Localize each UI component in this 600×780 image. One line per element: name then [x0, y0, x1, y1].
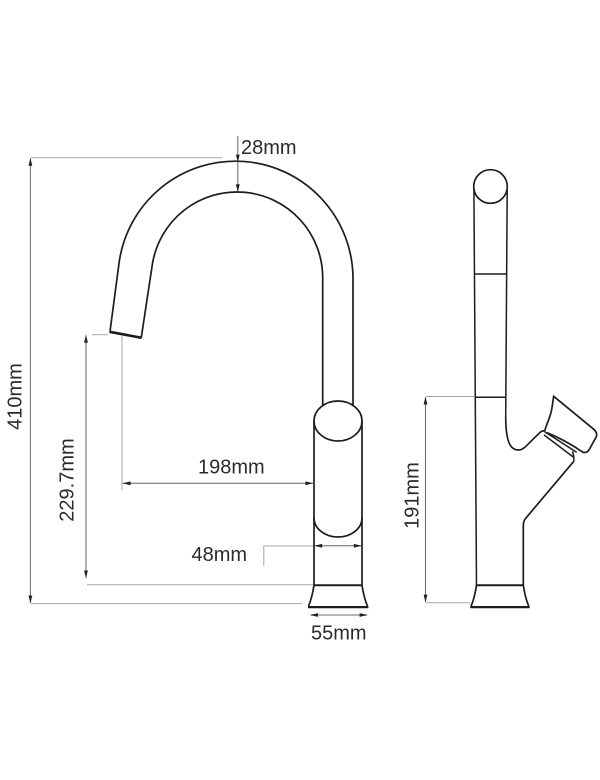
- svg-text:198mm: 198mm: [198, 457, 265, 479]
- svg-text:48mm: 48mm: [192, 544, 248, 566]
- svg-text:55mm: 55mm: [311, 623, 367, 645]
- svg-text:28mm: 28mm: [241, 137, 297, 159]
- svg-text:410mm: 410mm: [5, 363, 27, 430]
- svg-text:191mm: 191mm: [402, 462, 424, 529]
- svg-text:229.7mm: 229.7mm: [57, 438, 79, 521]
